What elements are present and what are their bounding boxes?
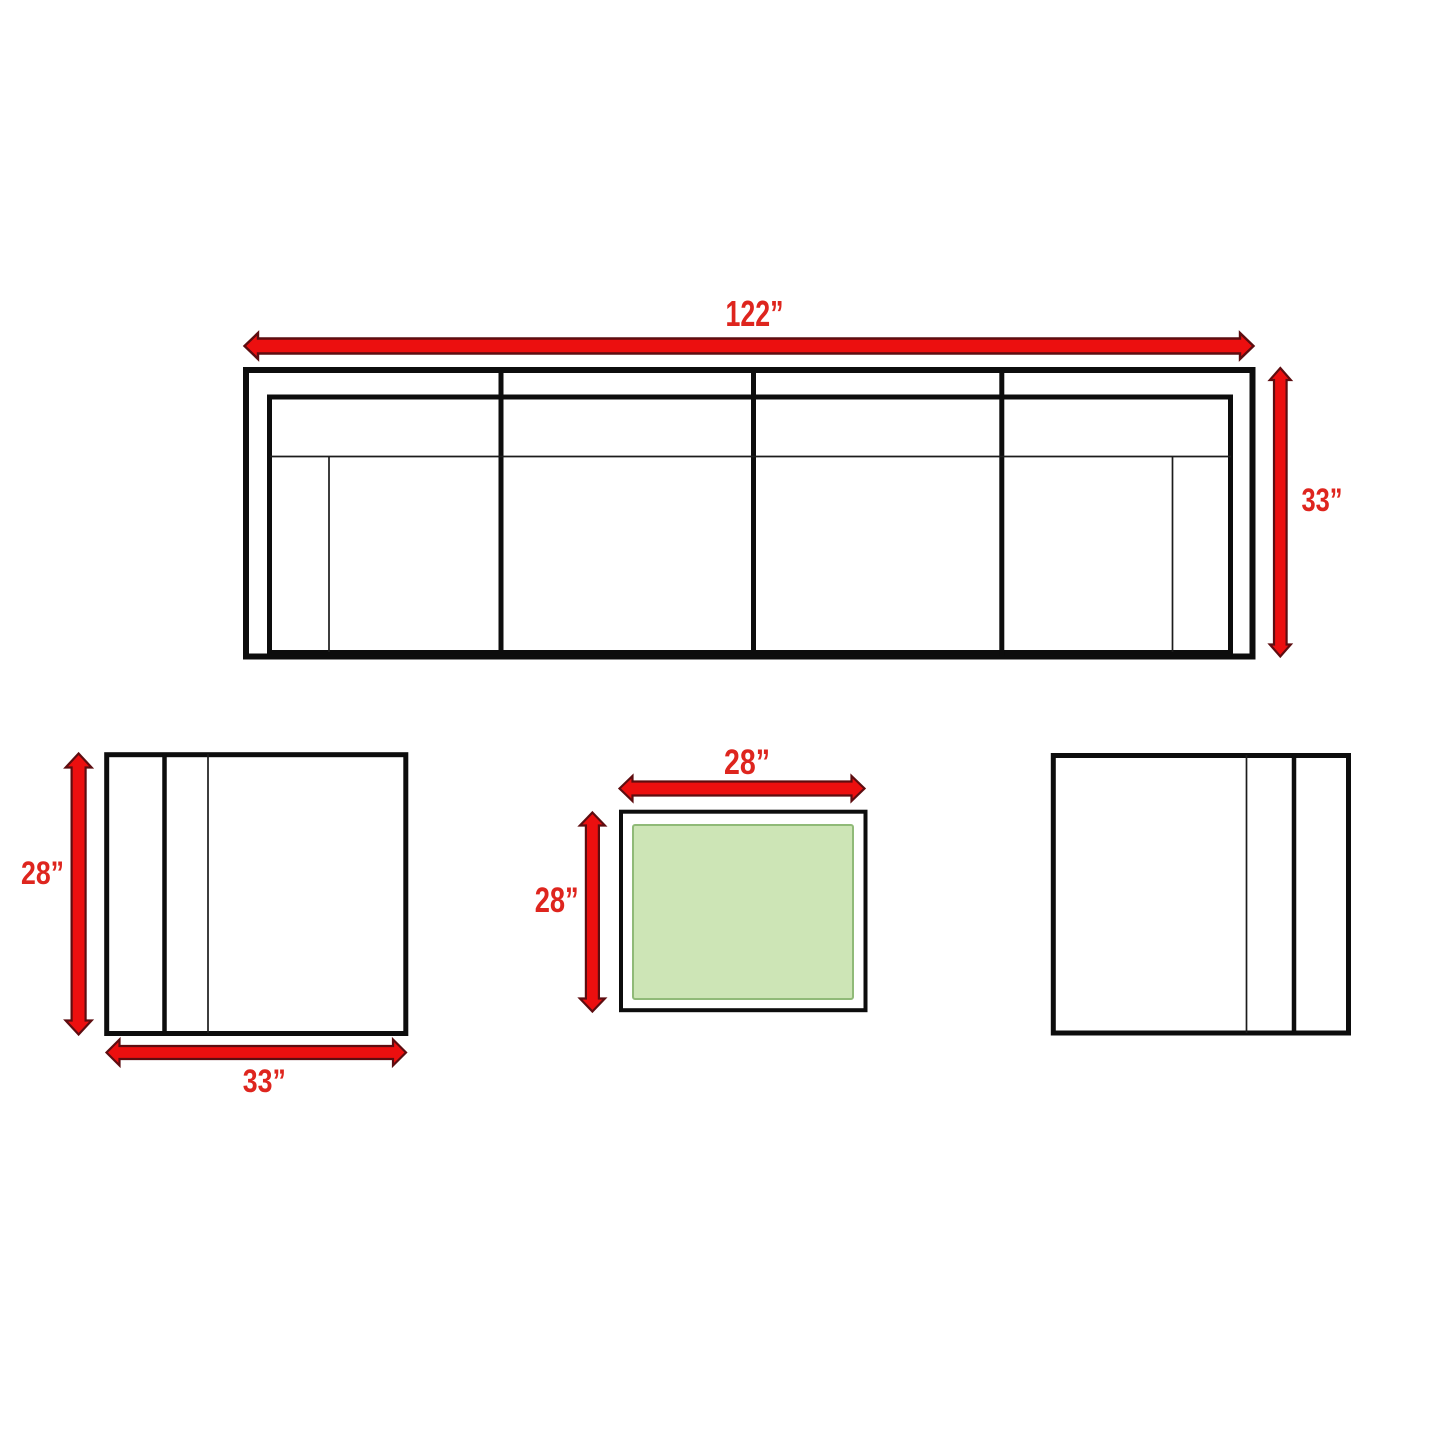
svg-text:28”: 28” [724,743,770,782]
svg-text:33”: 33” [243,1063,286,1099]
svg-text:122”: 122” [726,293,784,334]
svg-text:28”: 28” [535,881,579,920]
svg-text:33”: 33” [1302,482,1343,518]
svg-text:28”: 28” [21,855,64,891]
